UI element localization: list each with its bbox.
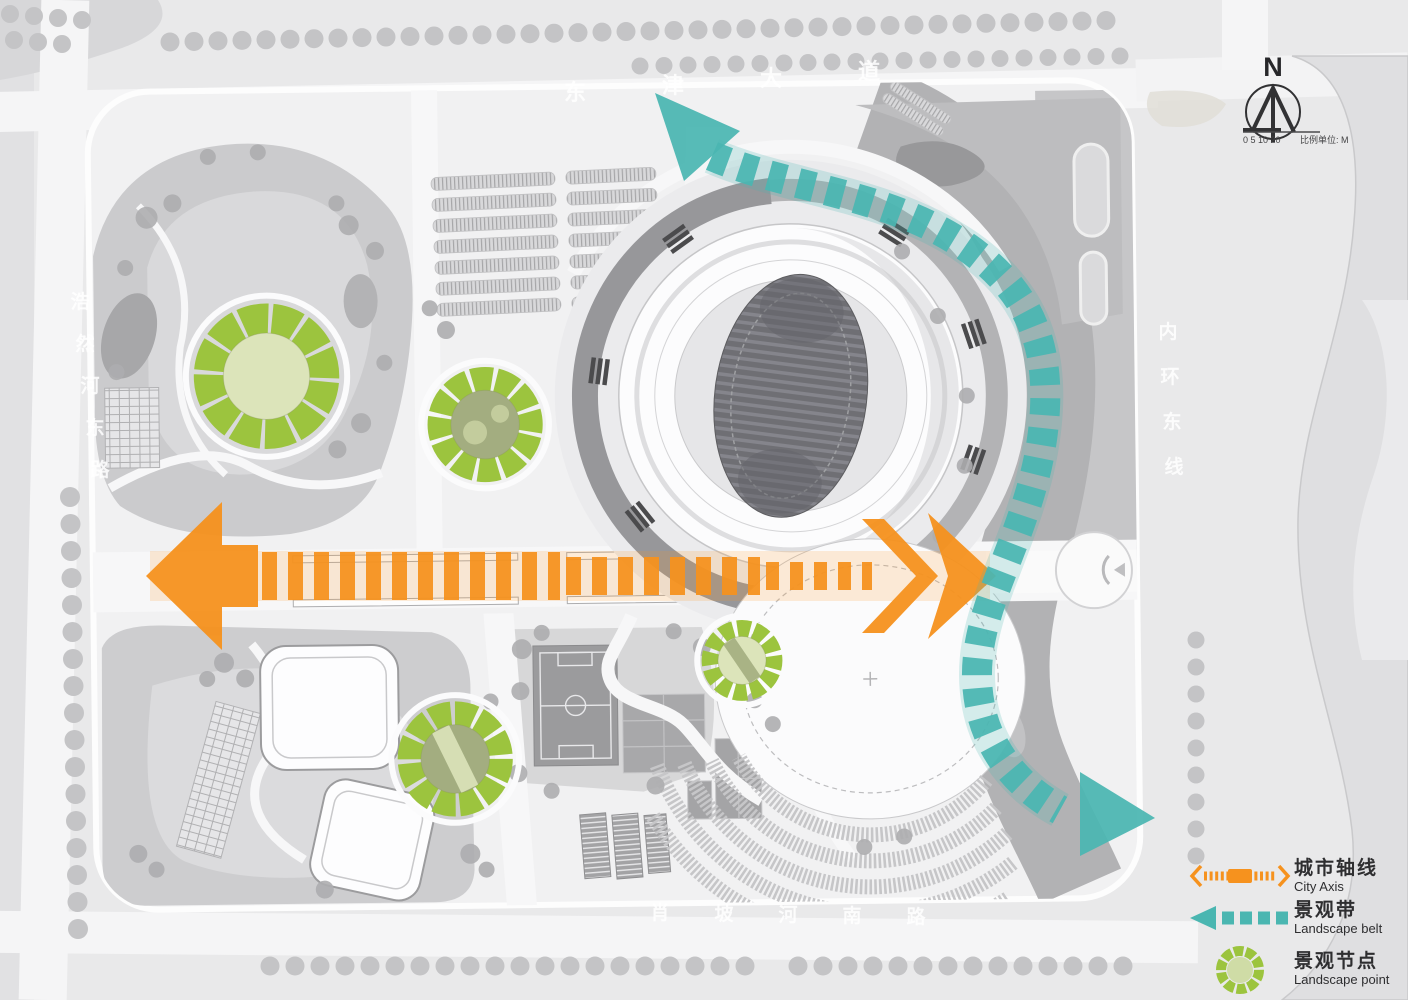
road-label-char: 坡	[714, 902, 734, 925]
trellis	[105, 388, 160, 469]
svg-text:N: N	[1263, 52, 1283, 82]
service-buildings	[580, 808, 671, 882]
legend-item-landscape-belt: 景观带 Landscape belt	[1186, 900, 1408, 937]
site-area	[87, 77, 1145, 948]
road-label-char: 河	[778, 904, 797, 926]
east-road	[1222, 0, 1268, 70]
legend-label-cn: 城市轴线	[1294, 858, 1378, 880]
road-label-char: 东	[1162, 410, 1181, 433]
road-label-char: 东	[564, 80, 586, 105]
landscape-point-symbol	[1186, 942, 1294, 998]
legend-item-city-axis: 城市轴线 City Axis	[1186, 858, 1408, 895]
ramp	[1074, 144, 1109, 236]
road-label-char: 路	[90, 458, 110, 481]
city-axis-symbol	[1186, 860, 1294, 892]
road-label-char: 道	[858, 59, 880, 84]
map-legend: 城市轴线 City Axis 景观带 Landscape belt 景观节点 L…	[1186, 858, 1408, 1000]
legend-item-landscape-point: 景观节点 Landscape point	[1186, 942, 1408, 998]
legend-label-en: City Axis	[1294, 880, 1378, 895]
road-label-char: 大	[760, 66, 782, 91]
road-label-char: 河	[80, 375, 99, 397]
landscape-belt-symbol	[1186, 903, 1294, 933]
master-plan-drawing: N 0 5 10 20 比例单位: M 东津大道浩然河东路内环东线肖坡河南路	[0, 0, 1408, 1000]
site-plan-canvas: N 0 5 10 20 比例单位: M 东津大道浩然河东路内环东线肖坡河南路 城…	[0, 0, 1408, 1000]
road-label-char: 津	[662, 73, 684, 98]
road-label-char: 东	[85, 416, 104, 439]
road-label-char: 线	[1164, 455, 1183, 478]
ramp	[1080, 252, 1107, 324]
road-label-char: 路	[906, 905, 926, 928]
road-label-char: 肖	[650, 901, 669, 924]
legend-label-cn: 景观带	[1294, 900, 1382, 922]
road-label-char: 环	[1160, 367, 1179, 388]
road-label-char: 内	[1158, 320, 1177, 343]
svg-text:0 5 10 20: 0 5 10 20	[1243, 135, 1281, 145]
legend-label-en: Landscape point	[1294, 973, 1389, 988]
legend-label-en: Landscape belt	[1294, 922, 1382, 937]
road-label-char: 然	[75, 332, 94, 355]
road-label-char: 南	[842, 905, 861, 927]
road-label-char: 浩	[70, 291, 89, 313]
svg-text:比例单位: M: 比例单位: M	[1300, 134, 1349, 145]
legend-label-cn: 景观节点	[1294, 951, 1389, 973]
building	[260, 645, 400, 771]
